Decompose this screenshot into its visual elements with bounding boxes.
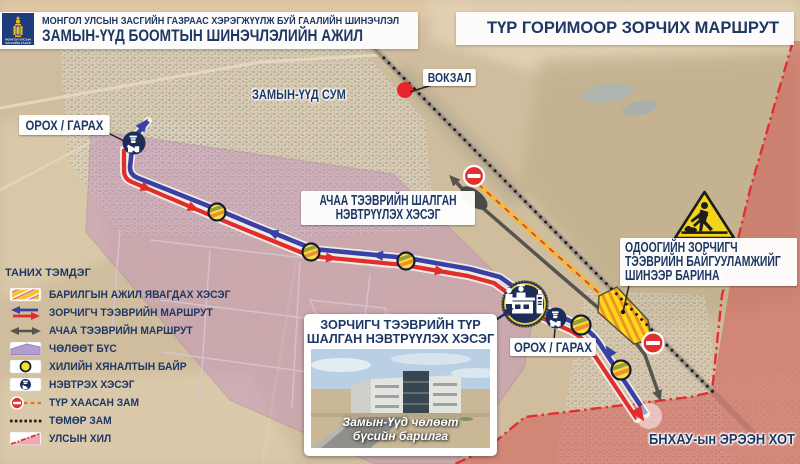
svg-text:ЗАСГИЙН ГАЗАР: ЗАСГИЙН ГАЗАР [5, 41, 31, 45]
